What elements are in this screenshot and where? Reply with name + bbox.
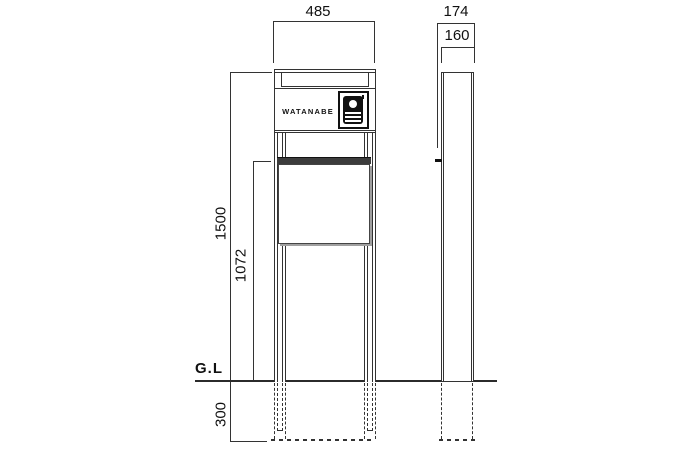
dim-extension-line [441, 47, 442, 63]
dim-embed-depth-line [230, 382, 231, 442]
mailbox-door-face [278, 164, 370, 244]
dim-extension-line [253, 161, 271, 162]
side-view-door-top-tick [435, 159, 442, 162]
dim-front-width-label: 485 [294, 4, 342, 19]
mailbox-door-top-band [277, 157, 371, 164]
intercom-speaker-grille-icon [345, 112, 361, 122]
dim-body-depth-line [441, 47, 474, 48]
light-slit [281, 72, 369, 87]
side-view-body [441, 72, 474, 382]
dim-embed-depth-label: 300 [214, 391, 229, 439]
dim-mailbox-top-height-line [253, 161, 254, 382]
dim-overall-height-line [230, 72, 231, 382]
dim-extension-line [374, 21, 375, 63]
dim-front-width-line [273, 21, 374, 22]
mailbox-door [277, 157, 371, 245]
dim-overall-height-label: 1500 [214, 200, 229, 248]
nameplate-panel: WATANABE [274, 69, 376, 133]
underground-bottom-side [439, 439, 476, 441]
underground-post-left [274, 383, 286, 439]
underground-bottom-front [271, 439, 375, 441]
intercom-camera-lens-icon [349, 100, 357, 108]
ground-level-label: G.L [195, 361, 223, 376]
underground-side [441, 383, 473, 439]
underground-post-right-face [367, 383, 373, 431]
underground-post-left-face [277, 383, 283, 431]
panel-divider-line [275, 88, 375, 89]
intercom-icon [338, 91, 369, 129]
dim-extension-line [230, 441, 267, 442]
dim-overall-depth-line [437, 23, 474, 24]
side-view-body-face [443, 73, 472, 381]
panel-bottom-edge [275, 130, 375, 131]
dim-overall-depth-label: 174 [432, 4, 480, 19]
intercom-device [343, 96, 363, 124]
side-view-front-panel-line [437, 24, 438, 148]
dim-extension-line [474, 23, 475, 63]
nameplate-text: WATANABE [280, 107, 336, 116]
drawing-canvas: 485 174 160 1500 1072 300 G.L WATANABE [0, 0, 690, 450]
dim-mailbox-top-height-label: 1072 [234, 242, 249, 290]
dim-extension-line [273, 21, 274, 63]
intercom-indicator-icon [362, 95, 364, 99]
dim-extension-line [230, 72, 272, 73]
underground-post-right [364, 383, 376, 439]
